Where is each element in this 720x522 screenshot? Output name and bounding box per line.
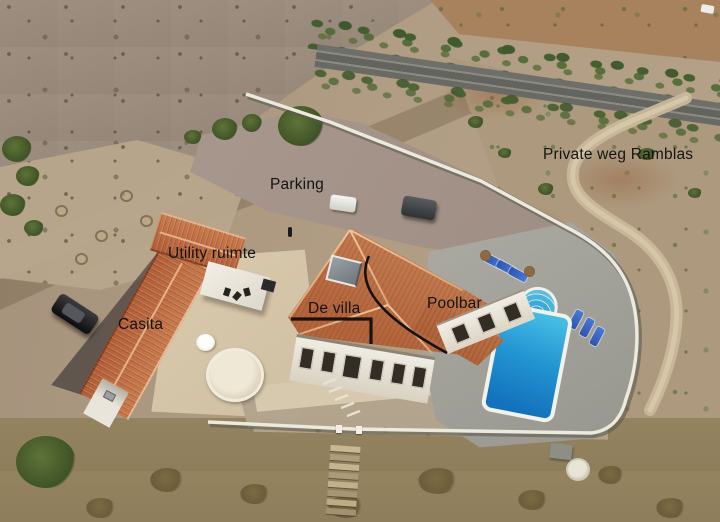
field-stone-circle: [95, 230, 108, 242]
dry-bush: [598, 466, 624, 484]
bush: [498, 148, 512, 158]
villa-window: [502, 302, 522, 323]
stair-tread: [326, 499, 356, 507]
aerial-photo: Private weg Ramblas Parking Utility ruim…: [0, 0, 720, 522]
stair-tread: [330, 454, 360, 462]
villa-window: [320, 351, 336, 374]
bush: [212, 118, 238, 140]
tree: [278, 106, 324, 146]
dry-bush: [240, 484, 270, 504]
gully-tree: [24, 220, 44, 236]
villa-window: [298, 347, 314, 370]
bush: [468, 116, 484, 128]
large-green-bush: [16, 436, 76, 488]
stair-tread: [327, 490, 357, 498]
garden-shed: [549, 443, 573, 461]
satellite-dish: [196, 334, 215, 351]
stair-tread: [326, 508, 356, 516]
gully-tree: [2, 136, 32, 162]
dry-bush: [86, 498, 116, 518]
label-private-weg-ramblas: Private weg Ramblas: [543, 146, 693, 164]
round-table: [480, 250, 491, 261]
round-pond: [206, 348, 264, 402]
round-tank: [566, 458, 590, 481]
stair-tread: [329, 463, 359, 471]
dry-bush: [518, 490, 548, 510]
car-roof-highlight: [61, 302, 86, 324]
round-table: [524, 266, 535, 277]
field-stone-circle: [140, 215, 153, 227]
stair-tread: [328, 472, 358, 480]
label-de-villa: De villa: [308, 300, 360, 318]
label-parking: Parking: [270, 176, 324, 194]
dry-bush: [150, 468, 184, 492]
dry-bush: [418, 468, 458, 494]
gully-tree: [16, 166, 40, 186]
villa-window: [411, 366, 427, 389]
villa-door: [342, 354, 363, 379]
villa-window: [390, 362, 406, 385]
label-utility-ruimte: Utility ruimte: [168, 245, 256, 263]
field-stone-circle: [75, 253, 88, 265]
gully-tree: [0, 194, 26, 216]
dry-bush: [656, 498, 686, 518]
stair-tread: [328, 481, 358, 489]
label-poolbar: Poolbar: [427, 295, 482, 313]
bush: [688, 188, 702, 198]
villa-window: [368, 359, 384, 382]
villa-window: [451, 323, 471, 344]
gate-post: [336, 425, 342, 433]
person: [288, 227, 292, 237]
label-casita: Casita: [118, 316, 163, 334]
field-stone-circle: [120, 190, 133, 202]
gate-post: [356, 426, 362, 434]
stair-tread: [330, 445, 360, 453]
villa-window: [476, 312, 496, 333]
bush: [242, 114, 262, 132]
bush: [538, 183, 554, 195]
field-stone-circle: [55, 205, 68, 217]
bush: [184, 130, 202, 144]
outdoor-stairs: [325, 445, 364, 521]
